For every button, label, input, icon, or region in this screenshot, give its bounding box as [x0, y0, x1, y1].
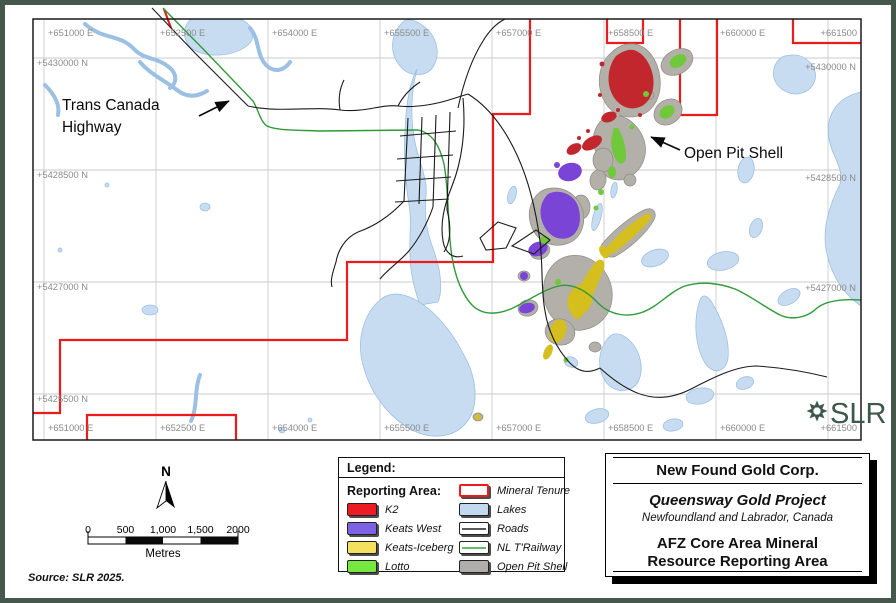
scale-tick: 500 [117, 524, 135, 536]
slr-logo: SLR [807, 398, 887, 430]
divider [613, 483, 862, 484]
coord-label: +657000 E [496, 28, 541, 38]
legend-item-label: Open Pit Shell [497, 561, 567, 573]
mineral-tenure-swatch [459, 484, 489, 497]
coord-label: +661500 [821, 28, 857, 38]
highway-arrow [199, 101, 229, 116]
roads-swatch [459, 522, 489, 535]
coord-label: +5425500 N [37, 394, 88, 404]
k2-swatch [347, 503, 377, 516]
title-block: New Found Gold Corp. Queensway Gold Proj… [605, 453, 870, 577]
divider [613, 571, 862, 572]
legend-box: Legend: Reporting Area: K2 Keats West Ke… [338, 457, 565, 572]
coord-label: +660000 E [720, 28, 765, 38]
lotto-swatch [347, 560, 377, 573]
coord-label: +655500 E [384, 423, 429, 433]
legend-item-label: Keats-Iceberg [385, 542, 453, 554]
coord-label: +5428500 N [37, 170, 88, 180]
legend-map-column: Mineral Tenure Lakes Roads NL T'Railway … [459, 481, 570, 576]
legend-item-railway: NL T'Railway [459, 538, 570, 557]
slr-logo-text: SLR [830, 398, 886, 430]
company-name: New Found Gold Corp. [606, 458, 869, 483]
coord-label: +654000 E [272, 28, 317, 38]
coord-label: +5430000 N [37, 58, 88, 68]
source-note: Source: SLR 2025. [28, 572, 125, 584]
map-title-line1: AFZ Core Area Mineral [606, 535, 869, 553]
legend-reporting-column: Reporting Area: K2 Keats West Keats-Iceb… [347, 481, 459, 576]
coord-label: +658500 E [608, 28, 653, 38]
scale-tick: 1,000 [150, 524, 176, 536]
coord-label: +657000 E [496, 423, 541, 433]
north-arrow: N [157, 464, 175, 508]
highway-label: Highway [62, 119, 122, 136]
open-pit-shells-layer [473, 43, 698, 421]
coord-label: +5427000 N [37, 282, 88, 292]
legend-item-keats-iceberg: Keats-Iceberg [347, 538, 459, 557]
legend-item-label: NL T'Railway [497, 542, 561, 554]
open-pit-arrow [651, 137, 680, 150]
coord-label: +5430000 N [805, 62, 856, 72]
lakes-swatch [459, 503, 489, 516]
north-label: N [161, 464, 171, 479]
coord-label: +651000 E [48, 423, 93, 433]
coord-label: +5427000 N [805, 283, 856, 293]
legend-item-label: Lotto [385, 561, 409, 573]
scale-tick: 1,500 [187, 524, 213, 536]
highway-label: Trans Canada [62, 97, 160, 114]
coord-label: +660000 E [720, 423, 765, 433]
rivers [45, 24, 290, 421]
keats-west-swatch [347, 522, 377, 535]
coord-label: +658500 E [608, 423, 653, 433]
coord-label: +654000 E [272, 423, 317, 433]
scale-bar: 0 500 1,000 1,500 2000 Metres [85, 524, 250, 560]
lakes-layer [45, 16, 861, 436]
legend-item-label: Roads [497, 523, 529, 535]
railway-line [462, 547, 486, 549]
coord-label: +655500 E [384, 28, 429, 38]
legend-item-lotto: Lotto [347, 557, 459, 576]
legend-reporting-heading: Reporting Area: [347, 481, 459, 500]
coord-label: +652500 E [160, 28, 205, 38]
project-name: Queensway Gold Project [606, 492, 869, 509]
coord-label: +651000 E [48, 28, 93, 38]
map-sheet: +651000 E +652500 E +654000 E +655500 E … [0, 0, 896, 603]
legend-item-label: Mineral Tenure [497, 485, 570, 497]
keats-iceberg-swatch [347, 541, 377, 554]
slr-star-icon [807, 401, 828, 422]
legend-item-open-pit-shell: Open Pit Shell [459, 557, 570, 576]
legend-item-keats-west: Keats West [347, 519, 459, 538]
legend-item-k2: K2 [347, 500, 459, 519]
open-pit-shell-label: Open Pit Shell [684, 145, 783, 162]
legend-item-roads: Roads [459, 519, 570, 538]
legend-item-lakes: Lakes [459, 500, 570, 519]
open-pit-swatch [459, 560, 489, 573]
legend-item-label: Keats West [385, 523, 441, 535]
scale-unit-label: Metres [145, 548, 180, 560]
legend-item-label: K2 [385, 504, 398, 516]
map-title-line2: Resource Reporting Area [606, 553, 869, 571]
coord-label: +5428500 N [805, 173, 856, 183]
legend-item-mineral-tenure: Mineral Tenure [459, 481, 570, 500]
legend-title: Legend: [339, 458, 564, 478]
railway-swatch [459, 541, 489, 554]
coord-label: +652500 E [160, 423, 205, 433]
roads-line [462, 528, 486, 530]
project-location: Newfoundland and Labrador, Canada [606, 512, 869, 524]
legend-item-label: Lakes [497, 504, 526, 516]
